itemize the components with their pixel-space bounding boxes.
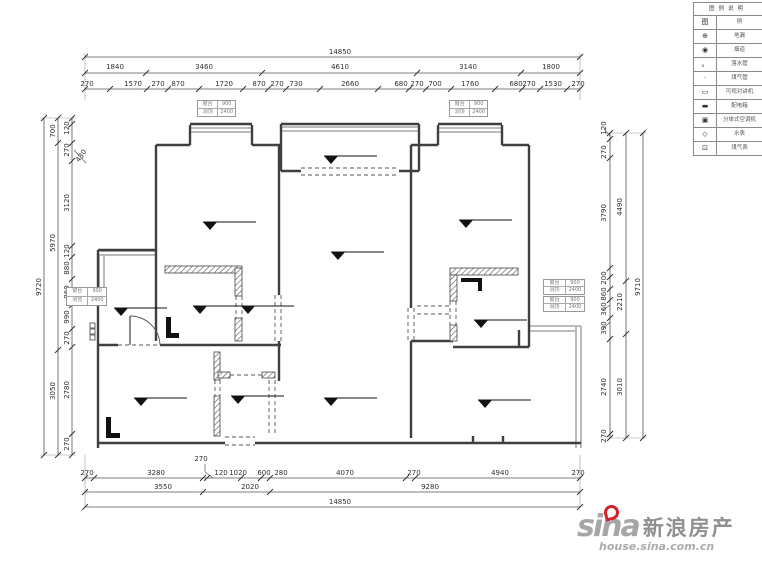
window-tag: 窗台900 洞顶2400 xyxy=(66,287,107,306)
dimension-text: 2020 xyxy=(241,483,259,491)
tag-cell: 2400 xyxy=(566,287,584,294)
legend-row: 。 落水管 xyxy=(694,58,762,72)
elevation-triangle xyxy=(324,156,338,164)
hatched-wall xyxy=(450,325,457,341)
dimension-text: 860 xyxy=(600,287,608,300)
window-tag: 窗台900 洞顶2400 xyxy=(543,296,585,312)
gas-pipe-icon: · xyxy=(694,72,717,85)
tag-cell: 900 xyxy=(566,297,584,304)
dimension-text: 680 xyxy=(394,80,407,88)
elevation-marker xyxy=(324,398,377,406)
dimension-text: 3120 xyxy=(63,194,71,212)
dimension-text: 270 xyxy=(194,455,207,463)
tag-cell: 2400 xyxy=(566,304,584,311)
column-post xyxy=(166,333,179,338)
dimension-text: 1800 xyxy=(542,63,560,71)
distribution-box-icon: ▬ xyxy=(694,100,717,113)
tag-cell: 窗台 xyxy=(67,288,88,297)
elevation-triangle xyxy=(459,220,473,228)
elevation-marker xyxy=(331,252,384,260)
legend-row: ◇ 水表 xyxy=(694,128,762,142)
dimension-text: 3010 xyxy=(616,378,624,396)
elevation-marker xyxy=(241,306,294,314)
legend-row: ◉ 烟道 xyxy=(694,44,762,58)
dimension-text: 280 xyxy=(274,469,287,477)
elevation-marker xyxy=(203,222,256,230)
dimension-text: 14850 xyxy=(329,498,351,506)
dimension-text: 270 xyxy=(270,80,283,88)
dimension-text: 3050 xyxy=(49,382,57,400)
gas-meter-icon: ⊡ xyxy=(694,142,717,155)
elevation-marker xyxy=(134,398,187,406)
legend-row-label: 煤气表 xyxy=(717,142,762,155)
elevation-triangle xyxy=(114,308,128,316)
dimension-text: 270 xyxy=(522,80,535,88)
dimension-text: 3460 xyxy=(195,63,213,71)
ac-unit-icon: ▣ xyxy=(694,114,717,127)
elevation-marker xyxy=(324,156,377,164)
legend-row-label: 分体式空调机 xyxy=(717,114,762,127)
hatched-wall xyxy=(218,372,230,378)
legend-row: ▬ 配电箱 xyxy=(694,100,762,114)
dimension-text: 9710 xyxy=(634,278,642,296)
tag-cell: 洞顶 xyxy=(67,297,88,306)
legend-row-label: 地漏 xyxy=(717,30,762,43)
legend-header-row: 图 例 xyxy=(694,16,762,30)
legend-row: · 煤气管 xyxy=(694,72,762,86)
tag-cell: 洞顶 xyxy=(544,287,566,294)
dimension-text: 1530 xyxy=(544,80,562,88)
elevation-triangle xyxy=(203,222,217,230)
dimension-text: 700 xyxy=(428,80,441,88)
dimension-text: 4070 xyxy=(336,469,354,477)
dimension-text: 4490 xyxy=(616,198,624,216)
dimension-text: 270 xyxy=(63,143,71,156)
dimension-text: 270 xyxy=(63,437,71,450)
dimension-text: 120 xyxy=(63,121,71,134)
intercom-box xyxy=(90,323,95,328)
elevation-triangle xyxy=(241,306,255,314)
hatched-wall xyxy=(214,396,220,436)
dimension-text: 1840 xyxy=(106,63,124,71)
elevation-triangle xyxy=(324,398,338,406)
dimension-text: 9720 xyxy=(35,278,43,296)
dimension-text: 270 xyxy=(80,469,93,477)
legend-row: ⊕ 地漏 xyxy=(694,30,762,44)
dimension-text: 1720 xyxy=(215,80,233,88)
tag-cell: 900 xyxy=(470,101,487,109)
legend-row: ▭ 可视对讲机 xyxy=(694,86,762,100)
dimension-text: 270 xyxy=(600,429,608,442)
dimension-text: 200 xyxy=(600,271,608,284)
window-tag: 窗台900 洞顶2400 xyxy=(543,279,585,295)
tag-cell: 窗台 xyxy=(544,280,566,287)
tag-cell: 2400 xyxy=(88,297,106,306)
dimension-text: 2740 xyxy=(600,378,608,396)
legend-row-label: 可视对讲机 xyxy=(717,86,762,99)
dimension-text: 270 xyxy=(571,469,584,477)
hatched-wall xyxy=(262,372,275,378)
dimension-text: 360 xyxy=(600,302,608,315)
dimension-text: 880 xyxy=(63,261,71,274)
tag-cell: 2400 xyxy=(218,109,235,117)
legend-row: ▣ 分体式空调机 xyxy=(694,114,762,128)
elevation-marker xyxy=(459,220,512,228)
tag-cell: 洞顶 xyxy=(544,304,566,311)
legend-table: 图例说明 图 例 ⊕ 地漏 ◉ 烟道 。 落水管 · 煤气管 ▭ 可视对讲机 ▬… xyxy=(693,2,762,156)
dimension-text: 14850 xyxy=(329,48,351,56)
dimension-text: 270 xyxy=(600,145,608,158)
column-post xyxy=(478,278,482,291)
dimension-text: 2660 xyxy=(341,80,359,88)
tag-cell: 窗台 xyxy=(450,101,470,109)
legend-row-label: 烟道 xyxy=(717,44,762,57)
floorplan-canvas: 1485018403460461031401800270157027087017… xyxy=(0,0,762,562)
dimension-text: 680 xyxy=(509,80,522,88)
wall-opening xyxy=(225,438,255,448)
tag-cell: 洞顶 xyxy=(450,109,470,117)
page: { "dims": { "top": {"total":"14850", "ro… xyxy=(0,0,762,562)
downpipe-icon: 。 xyxy=(694,58,717,71)
elevation-triangle xyxy=(193,306,207,314)
intercom-box xyxy=(90,329,95,334)
dimension-text: 4610 xyxy=(331,63,349,71)
tag-cell: 2400 xyxy=(470,109,487,117)
tag-cell: 窗台 xyxy=(198,101,218,109)
dimension-text: 270 xyxy=(80,80,93,88)
dimension-text: 1570 xyxy=(124,80,142,88)
dimension-text: 9280 xyxy=(421,483,439,491)
dimension-text: 4940 xyxy=(491,469,509,477)
elevation-marker xyxy=(114,308,167,316)
elevation-triangle xyxy=(331,252,345,260)
window-tag: 窗台900 洞顶2400 xyxy=(197,100,236,117)
hatched-wall xyxy=(165,266,242,273)
elevation-marker xyxy=(474,320,527,328)
dimension-text: 700 xyxy=(49,124,57,137)
dimension-text: 3280 xyxy=(147,469,165,477)
dimension-text: 270 xyxy=(407,469,420,477)
tag-cell: 窗台 xyxy=(544,297,566,304)
hatched-wall xyxy=(235,318,242,341)
dimension-text: 1760 xyxy=(461,80,479,88)
dimension-text: 5970 xyxy=(49,234,57,252)
hatched-wall xyxy=(450,268,518,275)
dimension-text: 600 xyxy=(257,469,270,477)
hatched-wall xyxy=(450,275,457,301)
legend-header-symbol: 图 xyxy=(694,16,717,29)
window-tag: 窗台900 洞顶2400 xyxy=(449,100,488,117)
elevation-marker xyxy=(231,396,284,404)
tag-cell: 900 xyxy=(218,101,235,109)
sina-watermark: sina 新浪房产 house.sina.com.cn xyxy=(577,512,759,558)
intercom-box xyxy=(90,335,95,340)
intercom-icon: ▭ xyxy=(694,86,717,99)
column-post xyxy=(106,433,120,438)
legend-title: 图例说明 xyxy=(694,3,762,16)
dimension-text: 730 xyxy=(289,80,302,88)
dimension-text: 3140 xyxy=(459,63,477,71)
tag-cell: 900 xyxy=(88,288,106,297)
legend-row-label: 煤气管 xyxy=(717,72,762,85)
legend-row-label: 落水管 xyxy=(717,58,762,71)
dimension-text: 390 xyxy=(600,321,608,334)
elevation-triangle xyxy=(231,396,245,404)
dimension-text: 1020 xyxy=(229,469,247,477)
floor-drain-icon: ⊕ xyxy=(694,30,717,43)
dimension-text: 120 xyxy=(214,469,227,477)
elevation-triangle xyxy=(478,400,492,408)
sina-brand-text: 新浪房产 xyxy=(643,512,735,542)
dimension-text: 870 xyxy=(171,80,184,88)
dimension-text: 990 xyxy=(63,310,71,323)
elevation-marker xyxy=(478,400,531,408)
dimension-text: 2780 xyxy=(63,381,71,399)
dimension-text: 2210 xyxy=(616,293,624,311)
floorplan-svg: 1485018403460461031401800270157027087017… xyxy=(0,0,762,562)
legend-row: ⊡ 煤气表 xyxy=(694,142,762,155)
dimension-text: 270 xyxy=(151,80,164,88)
hatched-wall xyxy=(235,268,242,296)
dimension-text: 3550 xyxy=(154,483,172,491)
water-meter-icon: ◇ xyxy=(694,128,717,141)
dimension-text: 270 xyxy=(63,331,71,344)
tag-cell: 洞顶 xyxy=(198,109,218,117)
legend-header-name: 例 xyxy=(717,16,762,29)
legend-row-label: 水表 xyxy=(717,128,762,141)
elevation-triangle xyxy=(474,320,488,328)
dimension-text: 3790 xyxy=(600,204,608,222)
tag-cell: 900 xyxy=(566,280,584,287)
dimension-text: 120 xyxy=(600,121,608,134)
dimension-text: 270 xyxy=(410,80,423,88)
flue-icon: ◉ xyxy=(694,44,717,57)
elevation-marker xyxy=(193,306,246,314)
dimension-text: 430 xyxy=(74,148,88,164)
dimension-text: 270 xyxy=(571,80,584,88)
dimension-text: 120 xyxy=(63,244,71,257)
legend-row-label: 配电箱 xyxy=(717,100,762,113)
dimension-text: 870 xyxy=(252,80,265,88)
elevation-triangle xyxy=(134,398,148,406)
